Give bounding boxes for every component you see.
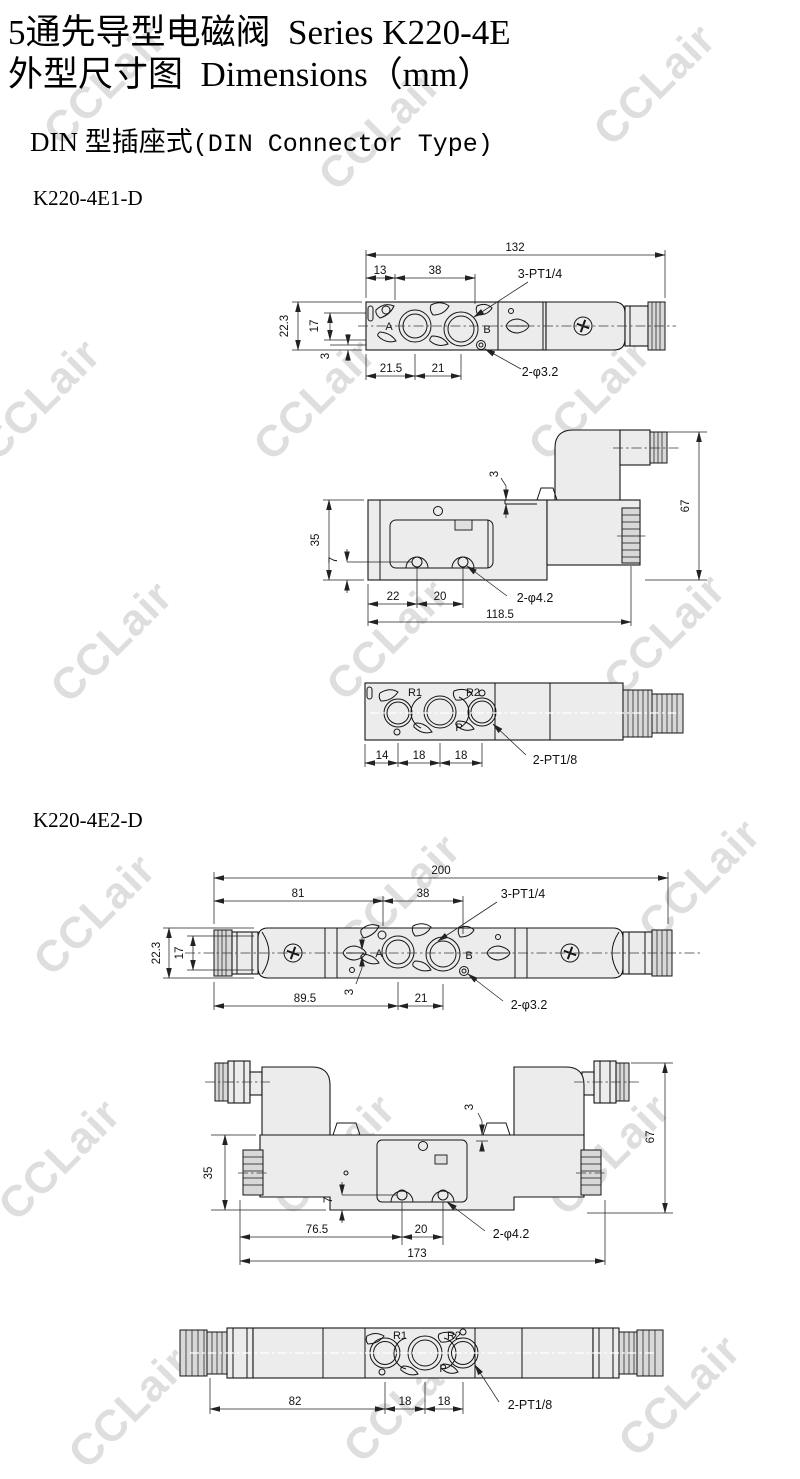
- dim-14: 14: [376, 750, 389, 762]
- watermark: CCLair: [41, 571, 183, 713]
- valve-geometry: [368, 430, 680, 580]
- dim-overall: 200: [431, 865, 450, 877]
- label-2pt18: 2-PT1/8: [508, 1398, 553, 1412]
- section-heading: DIN 型插座式(DIN Connector Type): [30, 120, 493, 159]
- dim-67: 67: [680, 500, 692, 513]
- label-2phi32: 2-φ3.2: [522, 365, 559, 379]
- dim-3: 3: [464, 1104, 476, 1110]
- valve-geometry: [185, 924, 700, 978]
- watermark: CCLair: [0, 329, 111, 471]
- dim-82: 82: [289, 1396, 302, 1408]
- dim-18a: 18: [399, 1396, 412, 1408]
- port-a-label: A: [375, 948, 383, 960]
- dim-18b: 18: [438, 1396, 451, 1408]
- port-r1-label: R1: [408, 687, 422, 699]
- drawing-4e2d-side-view: 3 67 35 7 76.5 20 2-φ4.2 173: [155, 1045, 780, 1280]
- dim-7: 7: [328, 557, 340, 563]
- dim-35: 35: [203, 1167, 215, 1180]
- dim-67: 67: [645, 1131, 657, 1144]
- dim-17: 17: [309, 320, 321, 333]
- label-2phi42: 2-φ4.2: [517, 591, 554, 605]
- dim-overall: 118.5: [486, 609, 514, 621]
- port-p-label: P: [455, 722, 462, 734]
- dim-overall: 132: [505, 242, 524, 254]
- dim-13: 13: [374, 265, 387, 277]
- valve-geometry: [358, 302, 676, 350]
- port-r1-label: R1: [393, 1330, 407, 1342]
- section-heading-zh: DIN 型插座式: [30, 127, 193, 157]
- dim-3: 3: [344, 989, 356, 995]
- watermark: CCLair: [0, 1089, 131, 1231]
- watermark: CCLair: [584, 14, 726, 156]
- dim-22: 22: [387, 591, 400, 603]
- drawing-4e2d-top-view: A B 200 81 38 3-PT1/4 22.3 17 89.5 3 21 …: [155, 858, 780, 1023]
- port-a-label: A: [385, 321, 393, 333]
- dim-21: 21: [415, 993, 428, 1005]
- port-b-label: B: [465, 950, 472, 962]
- page-subtitle-en: Dimensions（mm）: [201, 55, 493, 94]
- dim-3: 3: [320, 353, 332, 359]
- model1-label: K220-4E1-D: [33, 186, 143, 211]
- dim-223: 22.3: [279, 315, 291, 337]
- dim-223: 22.3: [151, 942, 163, 964]
- valve-geometry: [180, 1328, 663, 1378]
- dim-17: 17: [174, 947, 186, 960]
- label-2phi42: 2-φ4.2: [493, 1227, 530, 1241]
- watermark: CCLair: [24, 844, 166, 986]
- dim-895: 89.5: [294, 993, 316, 1005]
- dim-20: 20: [415, 1224, 428, 1236]
- label-2pt18: 2-PT1/8: [533, 753, 578, 767]
- dim-215: 21.5: [380, 363, 402, 375]
- dim-38: 38: [417, 888, 430, 900]
- port-r2-label: R2: [466, 687, 480, 699]
- drawing-4e1d-top-view: A B 132 13 38 3-PT1/4 22.3 17 3 21.5 21 …: [278, 238, 708, 403]
- label-2phi32: 2-φ3.2: [511, 998, 548, 1012]
- dim-7: 7: [323, 1197, 335, 1203]
- port-b-label: B: [483, 324, 490, 336]
- dim-18a: 18: [413, 750, 426, 762]
- dim-overall: 173: [407, 1248, 426, 1260]
- dim-18b: 18: [455, 750, 468, 762]
- label-3pt14: 3-PT1/4: [501, 887, 546, 901]
- section-heading-en: (DIN Connector Type): [193, 130, 493, 159]
- dim-3: 3: [489, 471, 501, 477]
- port-r2-label: R2: [447, 1330, 461, 1342]
- page-subtitle-zh: 外型尺寸图: [8, 55, 183, 94]
- dim-20: 20: [434, 591, 447, 603]
- dim-35: 35: [310, 534, 322, 547]
- drawing-4e1d-side-view: 3 67 35 7 22 20 2-φ4.2 118.5: [295, 408, 715, 638]
- model2-label: K220-4E2-D: [33, 808, 143, 833]
- valve-geometry: [205, 1061, 639, 1210]
- dim-38: 38: [429, 265, 442, 277]
- dim-81: 81: [292, 888, 305, 900]
- dim-21: 21: [432, 363, 445, 375]
- port-p-label: P: [439, 1363, 446, 1375]
- dim-765: 76.5: [306, 1224, 328, 1236]
- drawing-4e2d-bottom-view: R1 R2 P 82 18 18 2-PT1/8: [155, 1308, 780, 1428]
- page-subtitle: 外型尺寸图 Dimensions（mm）: [8, 46, 492, 97]
- drawing-4e1d-bottom-view: R1 R2 P 14 18 18 2-PT1/8: [330, 663, 760, 778]
- label-3pt14: 3-PT1/4: [518, 267, 563, 281]
